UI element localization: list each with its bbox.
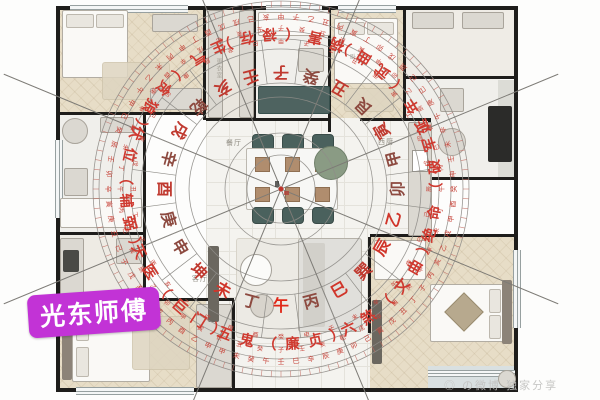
rug-topright <box>344 88 394 112</box>
window-right-1 <box>513 250 521 328</box>
wall-h2a <box>206 118 330 121</box>
wall-h3 <box>405 76 515 79</box>
wall-v4 <box>403 6 406 120</box>
wall-h2b <box>360 118 431 121</box>
watermark: ◎ の微博 独家分享 <box>444 377 558 393</box>
svg-text:亥: 亥 <box>163 279 173 289</box>
svg-text:癸: 癸 <box>449 186 458 193</box>
svg-text:午: 午 <box>438 186 446 192</box>
svg-text:申: 申 <box>168 236 192 259</box>
wall-h7 <box>370 234 516 237</box>
bathtub-top <box>258 12 330 36</box>
weibo-logo-icon: ◎ <box>444 380 457 392</box>
wall-v6 <box>232 300 235 390</box>
living-label: 客厅 <box>192 274 208 284</box>
fridge <box>116 238 142 264</box>
wall-v1 <box>203 6 206 120</box>
watermark-text: の微博 独家分享 <box>462 380 558 392</box>
placemat <box>255 187 270 202</box>
cabinet-right-2 <box>462 12 504 29</box>
svg-text:丁: 丁 <box>437 207 445 214</box>
placemat <box>285 157 300 172</box>
svg-text:丙: 丙 <box>148 259 157 268</box>
svg-text:甲: 甲 <box>447 215 456 223</box>
ensuite-fixture <box>374 240 426 280</box>
svg-text:酉: 酉 <box>155 181 173 197</box>
west-kitchen-counter <box>408 122 432 236</box>
kitchen-sink <box>412 150 428 172</box>
pillow <box>76 347 89 377</box>
sink-left <box>100 117 134 133</box>
dining-label: 餐厅 <box>226 138 242 148</box>
vanity-teal <box>258 86 330 114</box>
placemat <box>285 187 300 202</box>
wall-outer-right <box>514 6 518 392</box>
wall-h4 <box>430 177 515 180</box>
placemat <box>315 187 330 202</box>
bedroom-label: 卧室 <box>350 52 364 61</box>
svg-text:戌: 戌 <box>168 119 192 142</box>
pillow <box>489 289 501 313</box>
wall-v8 <box>368 237 371 333</box>
window-top-3 <box>338 5 396 13</box>
coffee-table-2 <box>250 294 274 318</box>
wall-v5 <box>143 114 146 302</box>
toilet-top <box>298 48 324 72</box>
window-bottom-1 <box>76 387 194 395</box>
pillow <box>489 315 501 339</box>
svg-text:辛: 辛 <box>157 149 179 169</box>
toilet-left <box>64 168 88 196</box>
pillow <box>367 22 394 35</box>
pillow <box>338 22 365 35</box>
headboard-bottomright <box>502 280 512 344</box>
cooktop <box>63 250 79 272</box>
wall-h5 <box>56 232 146 235</box>
pillow <box>96 14 124 28</box>
pillow <box>66 14 94 28</box>
dressing-room-label: 更衣室 <box>214 58 223 79</box>
sofa-cushions <box>303 243 325 327</box>
vanity-black <box>488 106 512 162</box>
dining-chair <box>282 207 304 224</box>
placemat <box>255 157 270 172</box>
dining-chair <box>252 207 274 224</box>
wardrobe-topleft <box>150 88 202 110</box>
dining-chair <box>312 207 334 224</box>
master-name-banner: 光东师傅 <box>27 286 162 338</box>
west-kitchen-label: 西厨 <box>378 137 394 147</box>
cabinet-right-1 <box>412 12 454 29</box>
feng-shui-floorplan-image: 更衣室 卧室 餐厅 西厨 <box>0 0 600 400</box>
svg-text:庚: 庚 <box>157 209 179 229</box>
wall-h1 <box>56 112 206 115</box>
dresser-topleft <box>152 14 198 32</box>
coffee-table-1 <box>240 254 272 286</box>
svg-text:酉: 酉 <box>449 200 458 208</box>
shower-right <box>438 128 466 156</box>
toilet-right <box>440 88 464 112</box>
bathtub-left <box>60 198 142 228</box>
console-bottomright <box>372 300 382 364</box>
bed-topright <box>334 18 398 84</box>
closet-right <box>239 10 254 118</box>
sofa <box>298 238 362 332</box>
tv-console <box>208 246 219 322</box>
plant <box>314 146 348 180</box>
washing-machine <box>62 118 88 144</box>
